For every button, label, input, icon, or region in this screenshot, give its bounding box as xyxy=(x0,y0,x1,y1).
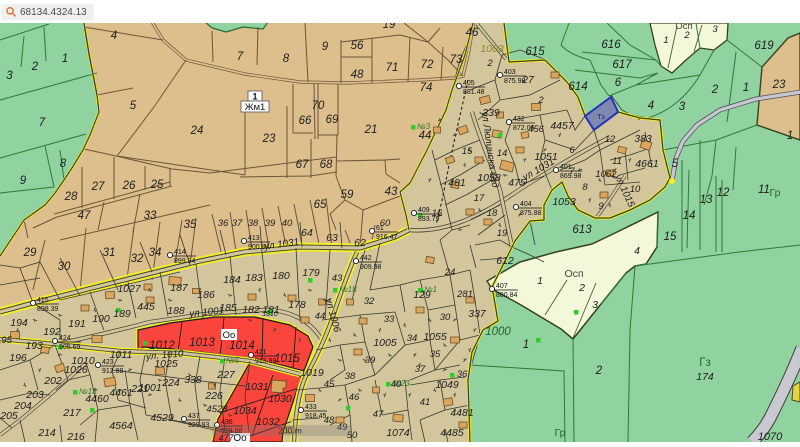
svg-text:4564: 4564 xyxy=(109,420,133,432)
svg-text:18: 18 xyxy=(487,208,498,219)
svg-text:48: 48 xyxy=(351,69,364,81)
svg-text:2: 2 xyxy=(595,365,603,377)
svg-text:1074: 1074 xyxy=(386,427,410,439)
svg-text:46: 46 xyxy=(466,27,479,39)
svg-text:32: 32 xyxy=(364,296,375,307)
svg-text:612: 612 xyxy=(496,255,514,267)
svg-text:Гз: Гз xyxy=(699,357,711,369)
svg-text:7: 7 xyxy=(569,166,575,177)
svg-text:23: 23 xyxy=(262,133,276,145)
svg-text:424: 424 xyxy=(59,335,71,342)
svg-text:30: 30 xyxy=(58,261,71,273)
svg-text:1019: 1019 xyxy=(300,367,324,379)
svg-text:43: 43 xyxy=(332,273,343,284)
svg-text:1070: 1070 xyxy=(758,431,783,442)
svg-text:403: 403 xyxy=(504,69,516,76)
svg-text:909.98: 909.98 xyxy=(360,264,382,271)
svg-text:41: 41 xyxy=(420,397,431,408)
svg-text:226: 226 xyxy=(204,390,223,402)
svg-text:188: 188 xyxy=(167,305,185,317)
svg-text:227: 227 xyxy=(216,369,236,381)
svg-text:194: 194 xyxy=(10,317,28,329)
svg-text:4: 4 xyxy=(634,245,640,257)
svg-text:2: 2 xyxy=(683,30,690,41)
svg-text:442: 442 xyxy=(360,255,372,262)
svg-text:1010: 1010 xyxy=(71,355,95,367)
svg-text:Тз: Тз xyxy=(597,114,605,121)
svg-text:205: 205 xyxy=(0,410,18,422)
svg-text:1049: 1049 xyxy=(435,379,459,391)
svg-text:26: 26 xyxy=(122,180,136,192)
svg-text:8: 8 xyxy=(283,53,290,65)
svg-text:615: 615 xyxy=(525,46,545,58)
svg-text:929.93: 929.93 xyxy=(188,422,210,429)
svg-text:5: 5 xyxy=(672,158,679,170)
svg-text:9: 9 xyxy=(322,41,329,53)
svg-text:38: 38 xyxy=(248,218,259,229)
svg-text:8: 8 xyxy=(60,158,67,170)
svg-text:202: 202 xyxy=(43,375,62,387)
svg-text:1034: 1034 xyxy=(233,405,257,417)
svg-text:2: 2 xyxy=(711,84,719,96)
svg-text:1: 1 xyxy=(663,35,668,46)
svg-text:73: 73 xyxy=(450,54,463,66)
svg-text:407: 407 xyxy=(496,283,508,290)
svg-text:619: 619 xyxy=(754,40,774,52)
svg-text:72: 72 xyxy=(421,59,434,71)
svg-text:17: 17 xyxy=(474,193,485,204)
svg-text:898.39: 898.39 xyxy=(37,306,59,313)
svg-text:34: 34 xyxy=(149,247,162,259)
svg-text:39: 39 xyxy=(265,218,276,229)
svg-text:193: 193 xyxy=(25,340,43,352)
svg-text:68: 68 xyxy=(320,159,333,171)
svg-text:№5: №5 xyxy=(226,356,240,365)
svg-text:Жм1: Жм1 xyxy=(245,102,266,113)
svg-text:413: 413 xyxy=(248,235,260,242)
svg-text:1: 1 xyxy=(62,53,68,65)
svg-text:1001: 1001 xyxy=(138,382,161,394)
svg-text:881.48: 881.48 xyxy=(463,89,485,96)
svg-text:200 m: 200 m xyxy=(278,426,302,436)
svg-text:383: 383 xyxy=(634,133,652,145)
svg-text:1013: 1013 xyxy=(189,337,215,349)
svg-text:60: 60 xyxy=(380,218,391,229)
svg-text:4529: 4529 xyxy=(150,412,174,424)
svg-text:11: 11 xyxy=(758,184,770,196)
svg-text:36: 36 xyxy=(218,218,229,229)
svg-text:192: 192 xyxy=(43,326,61,338)
svg-text:24: 24 xyxy=(444,267,456,278)
svg-text:613: 613 xyxy=(572,224,592,236)
svg-text:14: 14 xyxy=(497,148,508,159)
svg-text:46: 46 xyxy=(349,392,360,403)
svg-text:32: 32 xyxy=(131,253,144,265)
svg-text:59: 59 xyxy=(341,189,354,201)
svg-text:1014: 1014 xyxy=(229,340,255,352)
svg-text:37: 37 xyxy=(232,218,243,229)
svg-text:432: 432 xyxy=(513,116,525,123)
svg-text:44: 44 xyxy=(419,130,432,142)
svg-text:217: 217 xyxy=(62,407,82,419)
svg-text:5: 5 xyxy=(130,100,137,112)
svg-text:4485: 4485 xyxy=(440,427,464,439)
svg-text:224: 224 xyxy=(161,377,180,389)
svg-text:4661: 4661 xyxy=(635,158,658,170)
svg-text:191: 191 xyxy=(68,318,86,330)
svg-text:16: 16 xyxy=(432,208,443,219)
svg-text:916.47: 916.47 xyxy=(376,234,398,241)
svg-text:65: 65 xyxy=(314,199,327,211)
svg-text:35: 35 xyxy=(430,349,441,360)
svg-text:12: 12 xyxy=(717,187,730,199)
svg-text:67: 67 xyxy=(296,159,309,171)
svg-text:4481: 4481 xyxy=(450,407,473,419)
svg-text:7: 7 xyxy=(237,51,244,63)
svg-text:174: 174 xyxy=(696,371,714,383)
svg-text:196: 196 xyxy=(9,352,27,364)
svg-text:186: 186 xyxy=(197,289,215,301)
svg-text:1000: 1000 xyxy=(485,326,511,338)
svg-text:1005: 1005 xyxy=(373,337,397,349)
svg-text:4460: 4460 xyxy=(85,393,109,405)
svg-text:48: 48 xyxy=(324,415,335,426)
svg-text:27: 27 xyxy=(521,74,535,86)
svg-text:Гр: Гр xyxy=(555,427,566,439)
svg-text:905.69: 905.69 xyxy=(59,344,81,351)
svg-text:13: 13 xyxy=(700,194,713,206)
svg-text:875.88: 875.88 xyxy=(520,210,542,217)
svg-text:1: 1 xyxy=(523,339,529,351)
svg-text:12: 12 xyxy=(605,134,616,145)
svg-text:404: 404 xyxy=(520,201,532,208)
svg-text:4528: 4528 xyxy=(206,404,228,415)
svg-text:21: 21 xyxy=(364,124,378,136)
svg-text:70: 70 xyxy=(312,100,325,112)
svg-text:66: 66 xyxy=(299,115,312,127)
svg-text:47: 47 xyxy=(78,210,91,222)
svg-text:1015: 1015 xyxy=(274,353,300,365)
svg-text:617: 617 xyxy=(612,59,632,71)
svg-text:29: 29 xyxy=(23,247,37,259)
svg-text:№18: №18 xyxy=(339,285,357,294)
svg-text:616: 616 xyxy=(601,39,621,51)
svg-text:71: 71 xyxy=(386,62,399,74)
svg-text:1810: 1810 xyxy=(262,311,278,318)
svg-text:409: 409 xyxy=(418,207,430,214)
svg-text:64: 64 xyxy=(301,227,313,239)
svg-text:2: 2 xyxy=(537,95,544,106)
svg-text:4: 4 xyxy=(111,30,117,42)
svg-text:3: 3 xyxy=(6,70,13,82)
svg-text:1055: 1055 xyxy=(423,331,447,343)
svg-text:178: 178 xyxy=(288,299,306,311)
svg-text:62: 62 xyxy=(354,237,366,249)
svg-text:880.84: 880.84 xyxy=(496,292,518,299)
svg-text:Гр: Гр xyxy=(770,187,781,199)
svg-text:74: 74 xyxy=(420,82,433,94)
svg-text:9: 9 xyxy=(598,201,604,212)
svg-text:11: 11 xyxy=(612,156,622,167)
svg-text:4461: 4461 xyxy=(109,387,132,399)
svg-text:421: 421 xyxy=(255,349,267,356)
svg-text:23: 23 xyxy=(772,79,786,91)
svg-text:414: 414 xyxy=(174,249,186,256)
svg-text:3: 3 xyxy=(712,24,718,35)
svg-text:28: 28 xyxy=(64,191,78,203)
svg-text:433: 433 xyxy=(305,404,317,411)
svg-text:15: 15 xyxy=(664,231,677,243)
svg-text:899.94: 899.94 xyxy=(174,258,196,265)
svg-text:9: 9 xyxy=(20,175,27,187)
svg-text:3: 3 xyxy=(592,299,598,311)
svg-text:31: 31 xyxy=(103,247,116,259)
svg-text:1030: 1030 xyxy=(268,393,292,405)
svg-text:481: 481 xyxy=(448,177,466,189)
svg-text:912.88: 912.88 xyxy=(102,368,124,375)
svg-text:1053: 1053 xyxy=(552,196,576,208)
svg-text:19: 19 xyxy=(497,228,508,239)
svg-text:2: 2 xyxy=(578,282,585,294)
svg-text:44: 44 xyxy=(315,311,326,322)
svg-text:184: 184 xyxy=(223,274,241,286)
svg-text:37: 37 xyxy=(415,364,426,375)
svg-text:47: 47 xyxy=(373,409,384,420)
svg-text:40: 40 xyxy=(282,218,293,229)
svg-text:6: 6 xyxy=(569,145,575,156)
svg-text:183: 183 xyxy=(245,272,263,284)
svg-text:190: 190 xyxy=(92,313,110,325)
svg-text:1: 1 xyxy=(252,92,257,102)
svg-text:405: 405 xyxy=(463,80,475,87)
svg-text:27: 27 xyxy=(91,181,105,193)
svg-text:38: 38 xyxy=(345,371,356,382)
svg-text:56: 56 xyxy=(351,40,364,52)
svg-text:14: 14 xyxy=(683,210,696,222)
svg-text:Оо: Оо xyxy=(223,330,236,341)
svg-text:436: 436 xyxy=(221,419,233,426)
svg-text:2: 2 xyxy=(486,58,493,69)
svg-text:30: 30 xyxy=(440,312,451,323)
svg-text:182: 182 xyxy=(242,304,260,316)
svg-text:6: 6 xyxy=(615,77,622,89)
svg-text:179: 179 xyxy=(302,267,320,279)
svg-text:25: 25 xyxy=(150,179,164,191)
svg-text:33: 33 xyxy=(144,210,157,222)
svg-text:1: 1 xyxy=(787,130,793,142)
svg-text:338: 338 xyxy=(184,374,202,386)
svg-text:40: 40 xyxy=(391,379,402,390)
svg-text:33: 33 xyxy=(384,314,395,325)
svg-text:195: 195 xyxy=(0,335,13,346)
svg-text:214: 214 xyxy=(37,427,56,439)
svg-text:Осп: Осп xyxy=(564,268,583,280)
svg-text:415: 415 xyxy=(37,297,49,304)
svg-text:43: 43 xyxy=(385,186,398,198)
svg-text:1003: 1003 xyxy=(480,43,504,55)
svg-text:180: 180 xyxy=(272,270,290,282)
svg-text:15: 15 xyxy=(462,146,473,157)
svg-text:1031: 1031 xyxy=(245,381,268,393)
svg-text:1: 1 xyxy=(743,82,749,94)
svg-text:2: 2 xyxy=(31,61,39,73)
svg-text:24: 24 xyxy=(190,125,204,137)
svg-text:445: 445 xyxy=(137,301,155,313)
svg-text:1027: 1027 xyxy=(117,283,142,295)
svg-text:456: 456 xyxy=(528,124,545,135)
svg-text:4457: 4457 xyxy=(550,120,575,132)
svg-text:4: 4 xyxy=(648,100,654,112)
svg-text:45: 45 xyxy=(324,379,335,390)
svg-text:34: 34 xyxy=(407,333,418,344)
svg-text:3: 3 xyxy=(679,101,686,113)
svg-text:189: 189 xyxy=(113,308,131,320)
svg-text:187: 187 xyxy=(170,282,189,294)
svg-text:129: 129 xyxy=(413,289,431,301)
svg-text:437: 437 xyxy=(188,413,200,420)
svg-text:1011: 1011 xyxy=(110,349,133,361)
svg-text:1: 1 xyxy=(537,275,543,287)
svg-text:337: 337 xyxy=(468,308,487,320)
svg-text:8: 8 xyxy=(582,182,588,193)
svg-text:7: 7 xyxy=(39,117,46,129)
svg-text:69: 69 xyxy=(326,114,339,126)
svg-text:39: 39 xyxy=(365,355,376,366)
svg-text:63: 63 xyxy=(326,232,338,244)
svg-text:614: 614 xyxy=(568,81,587,93)
svg-text:216: 216 xyxy=(66,431,85,442)
svg-text:281: 281 xyxy=(456,289,473,300)
svg-text:35: 35 xyxy=(184,219,197,231)
